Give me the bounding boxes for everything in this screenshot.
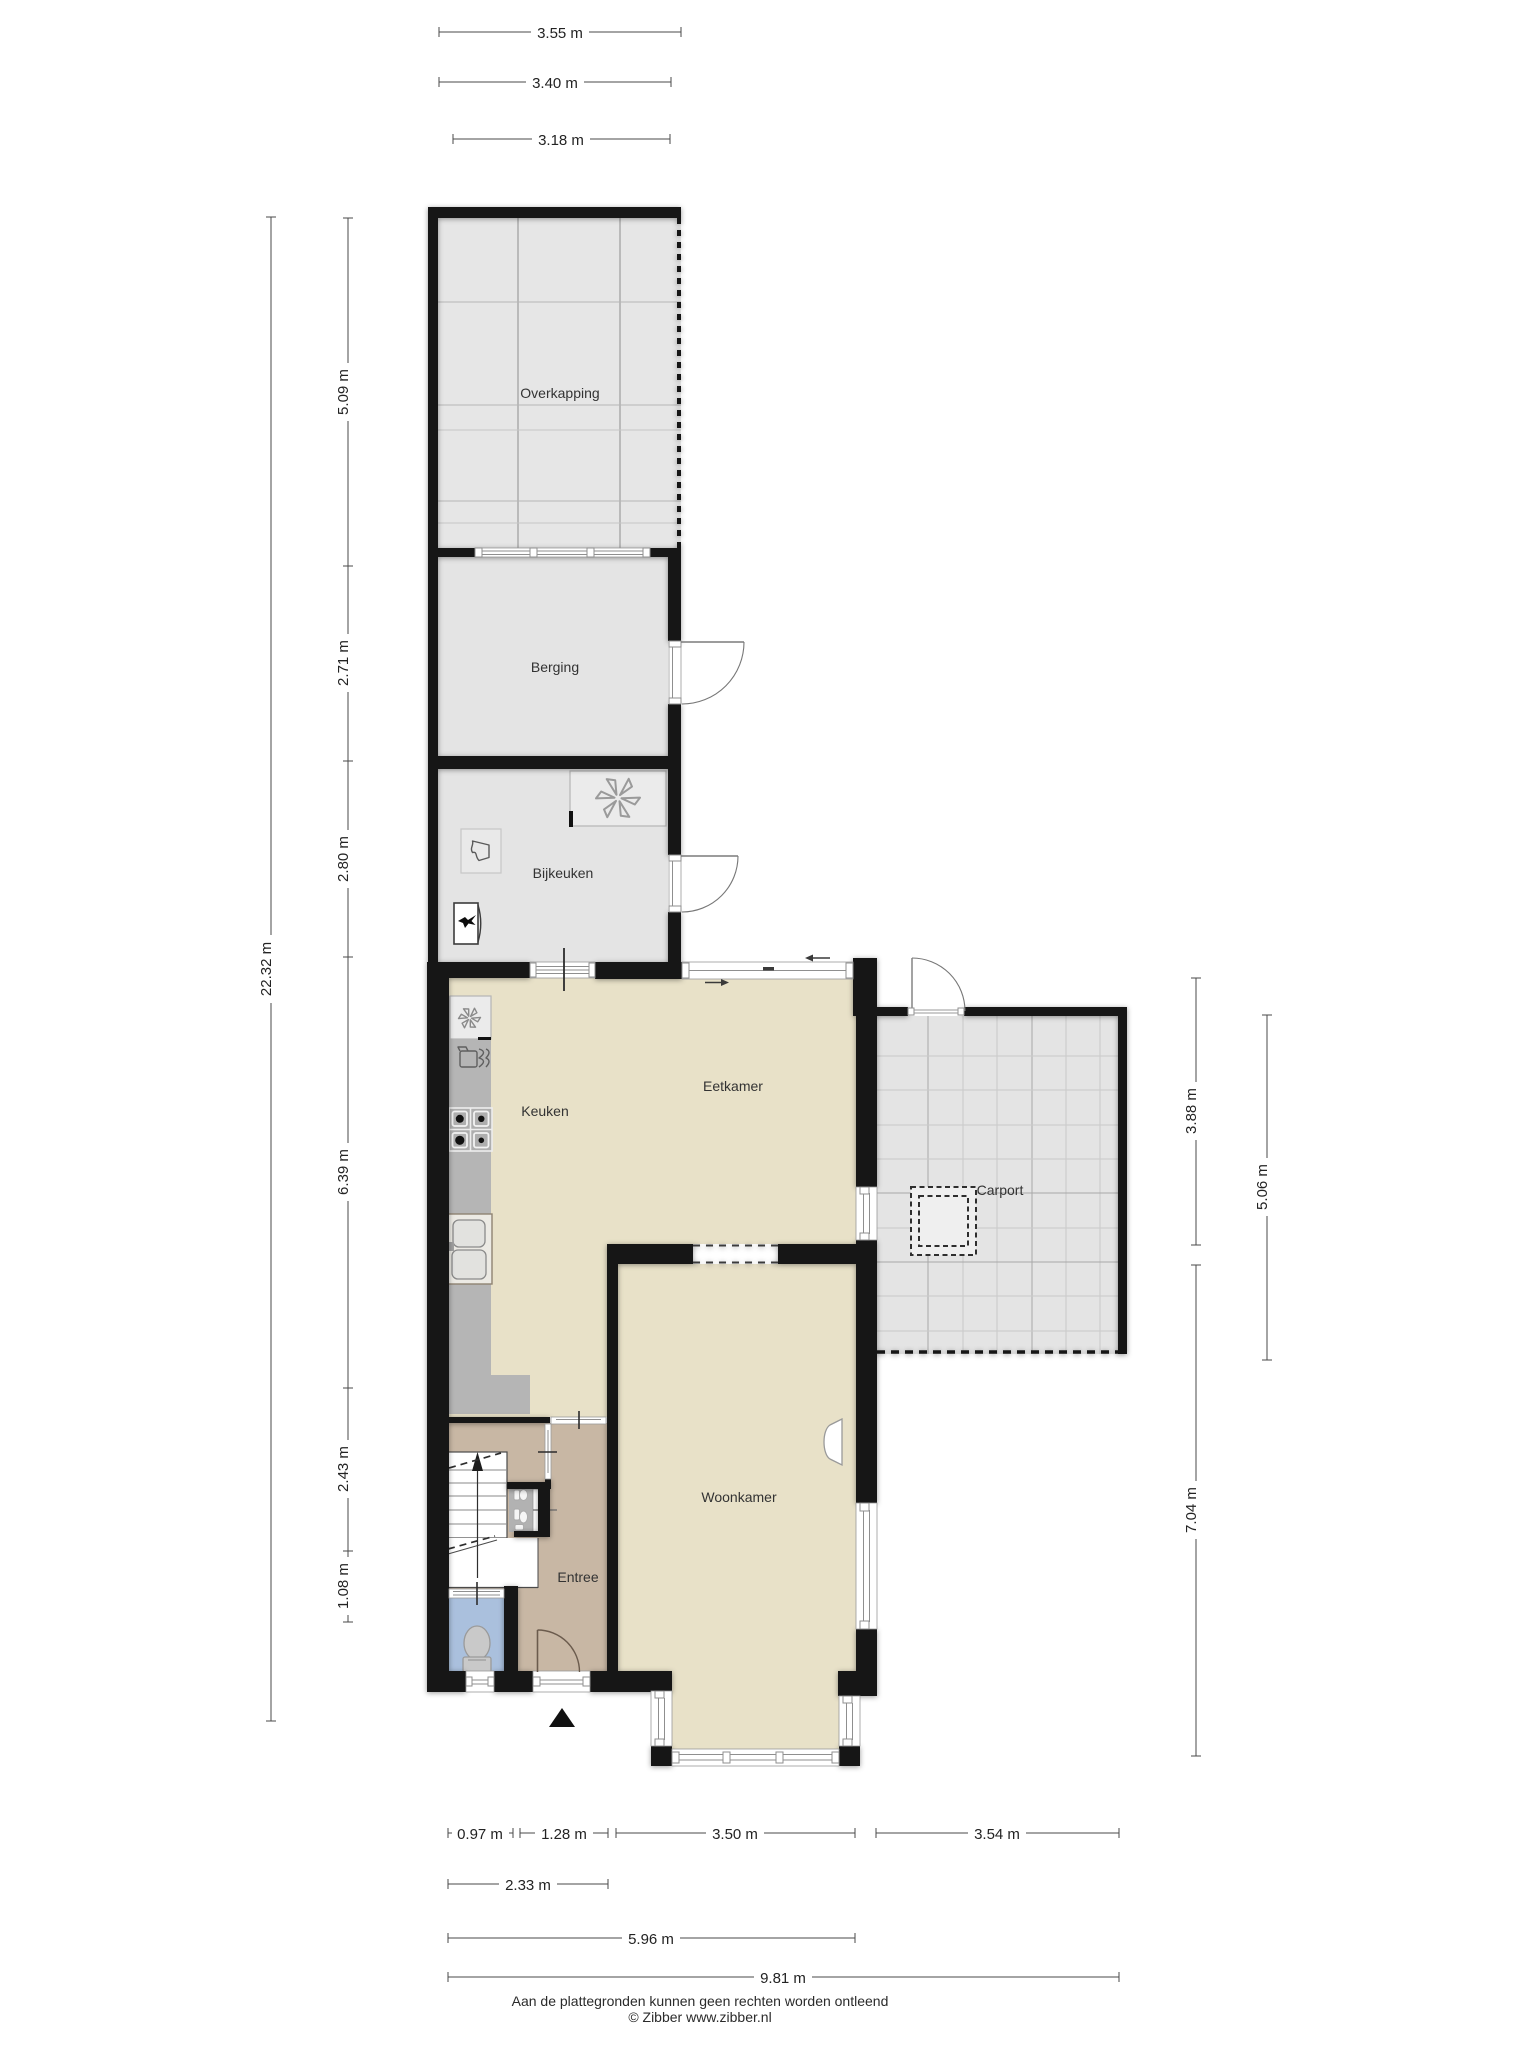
svg-text:1.28 m: 1.28 m (541, 1826, 587, 1843)
svg-text:2.43 m: 2.43 m (335, 1446, 352, 1492)
svg-text:Carport: Carport (977, 1182, 1024, 1198)
svg-text:Entree: Entree (557, 1569, 598, 1585)
svg-text:2.71 m: 2.71 m (335, 640, 352, 686)
svg-text:22.32 m: 22.32 m (258, 942, 275, 996)
svg-text:5.09 m: 5.09 m (335, 369, 352, 415)
svg-text:Bijkeuken: Bijkeuken (533, 865, 594, 881)
svg-text:© Zibber www.zibber.nl: © Zibber www.zibber.nl (628, 2009, 771, 2025)
svg-text:3.55 m: 3.55 m (537, 25, 583, 42)
svg-text:Woonkamer: Woonkamer (701, 1489, 777, 1505)
svg-text:0.97 m: 0.97 m (457, 1826, 503, 1843)
svg-text:1.08 m: 1.08 m (335, 1563, 352, 1609)
svg-text:3.54 m: 3.54 m (974, 1826, 1020, 1843)
svg-text:3.50 m: 3.50 m (712, 1826, 758, 1843)
svg-text:2.33 m: 2.33 m (505, 1877, 551, 1894)
svg-text:Overkapping: Overkapping (520, 385, 599, 401)
svg-text:7.04 m: 7.04 m (1183, 1487, 1200, 1533)
svg-text:Berging: Berging (531, 659, 579, 675)
svg-text:Aan de plattegronden kunnen ge: Aan de plattegronden kunnen geen rechten… (512, 1993, 889, 2009)
svg-text:3.88 m: 3.88 m (1183, 1088, 1200, 1134)
svg-text:6.39 m: 6.39 m (335, 1149, 352, 1195)
svg-text:Eetkamer: Eetkamer (703, 1078, 763, 1094)
svg-text:2.80 m: 2.80 m (335, 836, 352, 882)
svg-text:Keuken: Keuken (521, 1103, 568, 1119)
svg-text:9.81 m: 9.81 m (760, 1970, 806, 1987)
svg-text:5.06 m: 5.06 m (1254, 1164, 1271, 1210)
svg-text:3.40 m: 3.40 m (532, 75, 578, 92)
svg-text:5.96 m: 5.96 m (628, 1931, 674, 1948)
svg-text:3.18 m: 3.18 m (538, 132, 584, 149)
